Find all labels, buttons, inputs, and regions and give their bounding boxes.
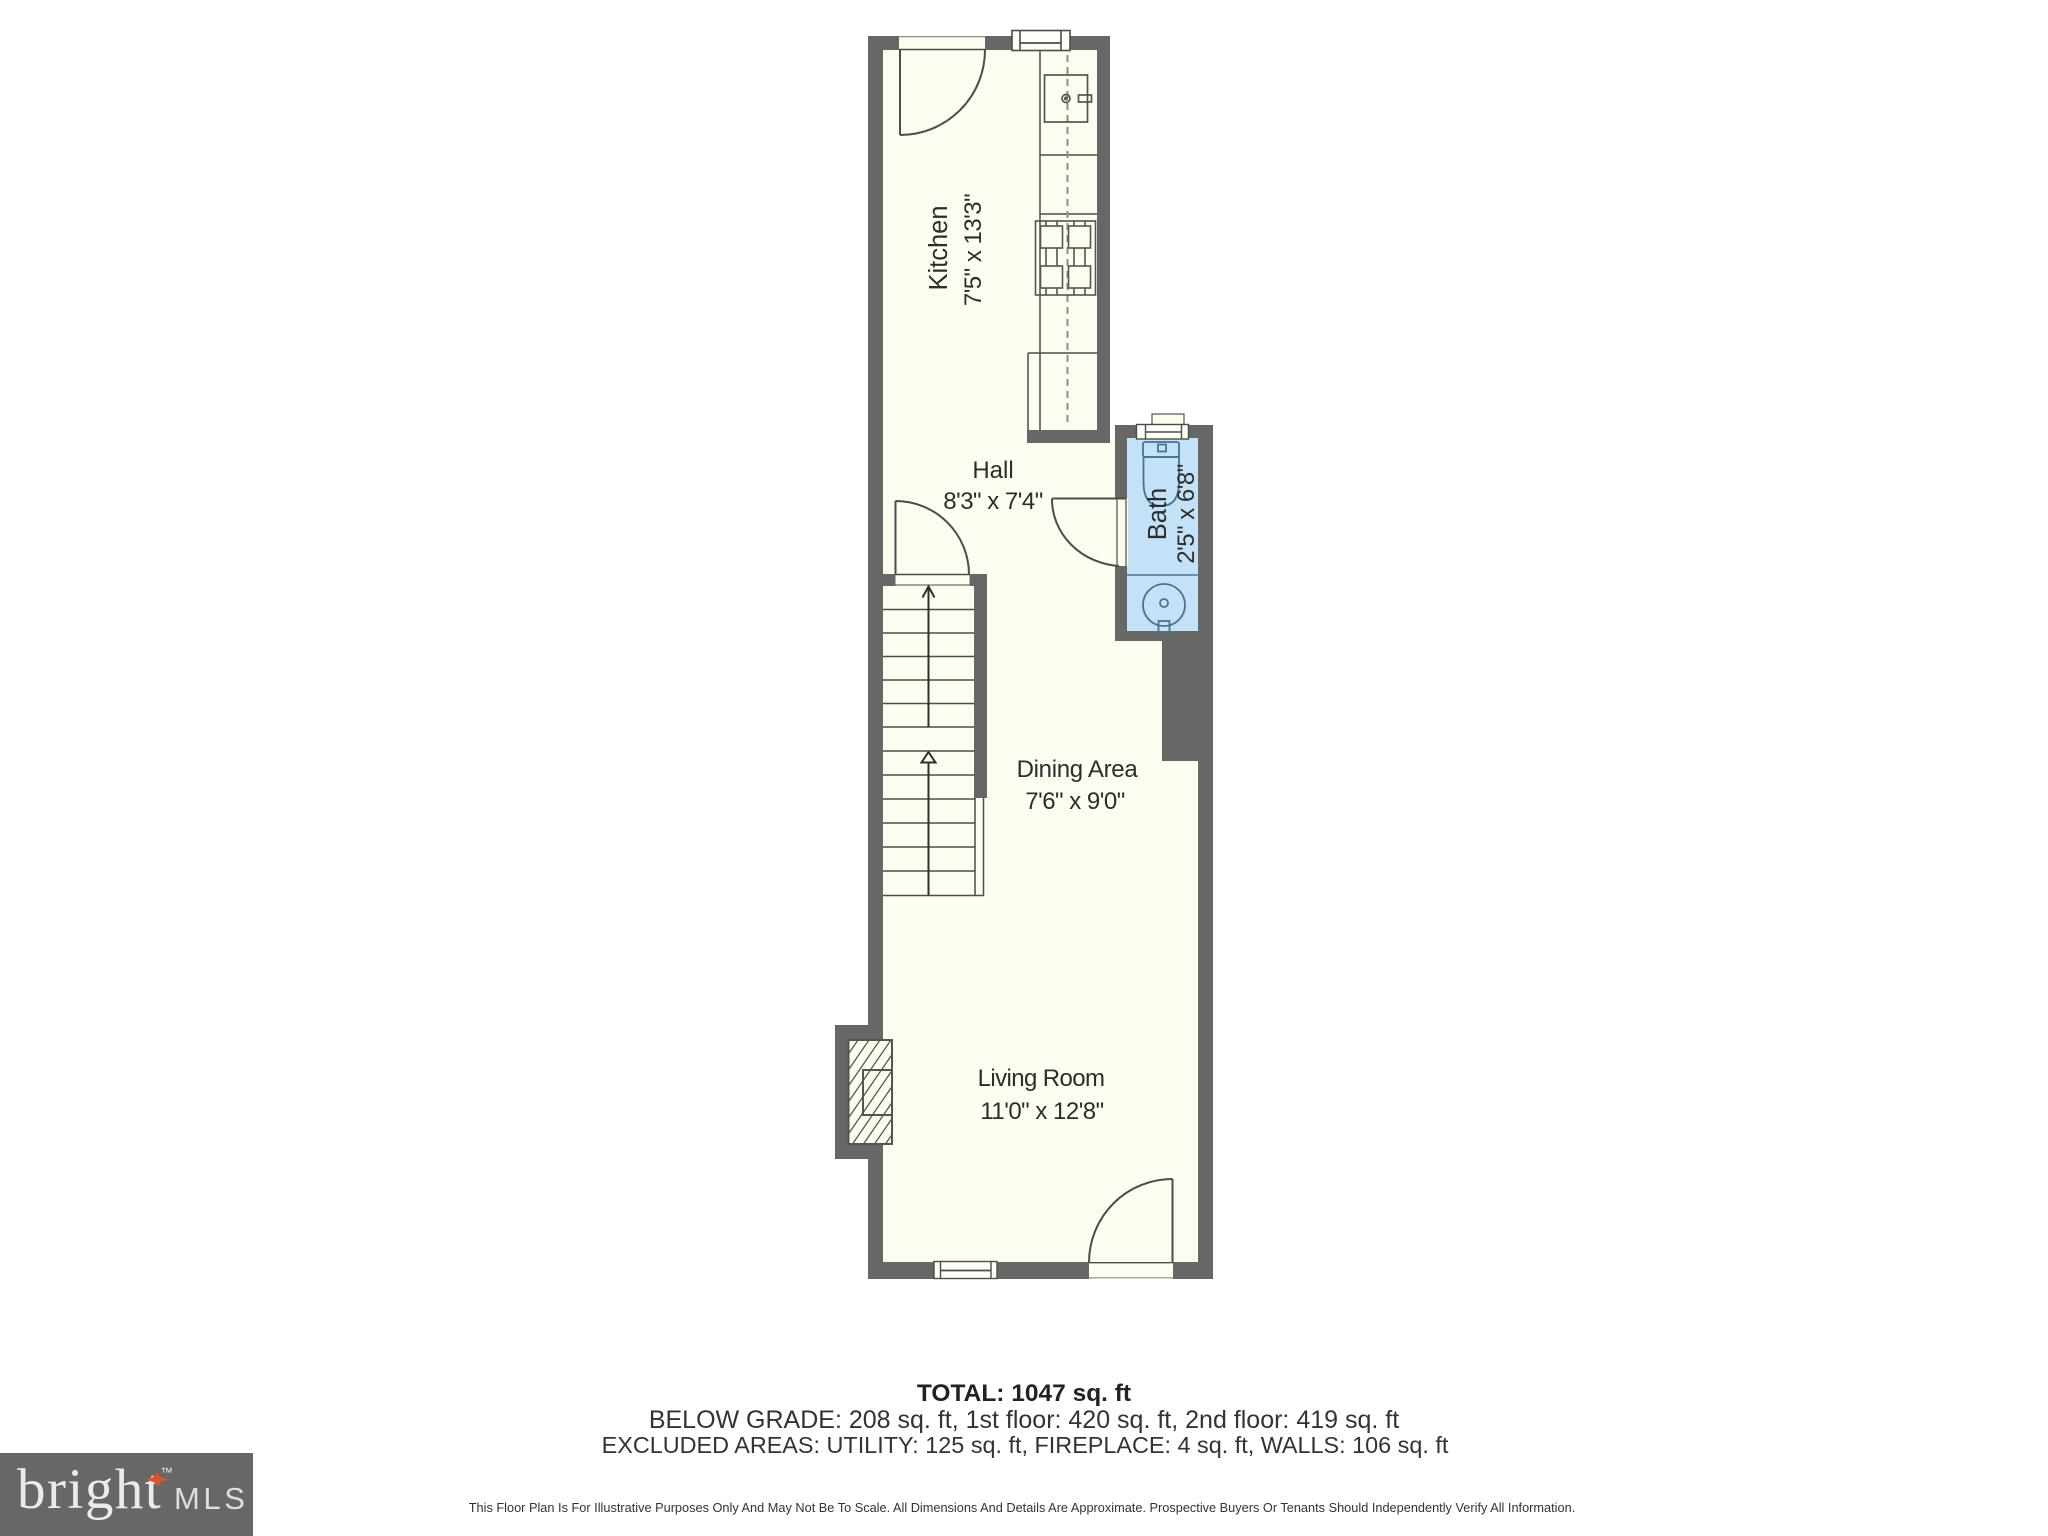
svg-text:EXCLUDED AREAS: UTILITY: 125 s: EXCLUDED AREAS: UTILITY: 125 sq. ft, FIR… <box>602 1432 1449 1458</box>
svg-text:MLS: MLS <box>174 1481 249 1516</box>
svg-text:™: ™ <box>161 1466 174 1480</box>
svg-text:bright: bright <box>17 1458 162 1521</box>
svg-text:11'0" x 12'8": 11'0" x 12'8" <box>980 1098 1103 1125</box>
svg-text:Dining Area: Dining Area <box>1017 756 1139 783</box>
svg-text:7'5" x 13'3": 7'5" x 13'3" <box>960 194 987 306</box>
svg-text:Bath: Bath <box>1144 488 1172 540</box>
svg-text:Hall: Hall <box>972 457 1013 484</box>
svg-text:7'6" x 9'0": 7'6" x 9'0" <box>1025 788 1124 815</box>
svg-text:TOTAL: 1047 sq. ft: TOTAL: 1047 sq. ft <box>917 1380 1131 1407</box>
svg-text:BELOW GRADE: 208 sq. ft, 1st f: BELOW GRADE: 208 sq. ft, 1st floor: 420 … <box>649 1406 1399 1434</box>
svg-text:Living Room: Living Room <box>978 1065 1105 1092</box>
svg-text:2'5" x 6'8": 2'5" x 6'8" <box>1173 464 1200 563</box>
svg-text:8'3" x 7'4": 8'3" x 7'4" <box>943 488 1042 515</box>
svg-text:This Floor Plan Is For Illustr: This Floor Plan Is For Illustrative Purp… <box>469 1500 1576 1515</box>
svg-text:Kitchen: Kitchen <box>925 205 953 290</box>
